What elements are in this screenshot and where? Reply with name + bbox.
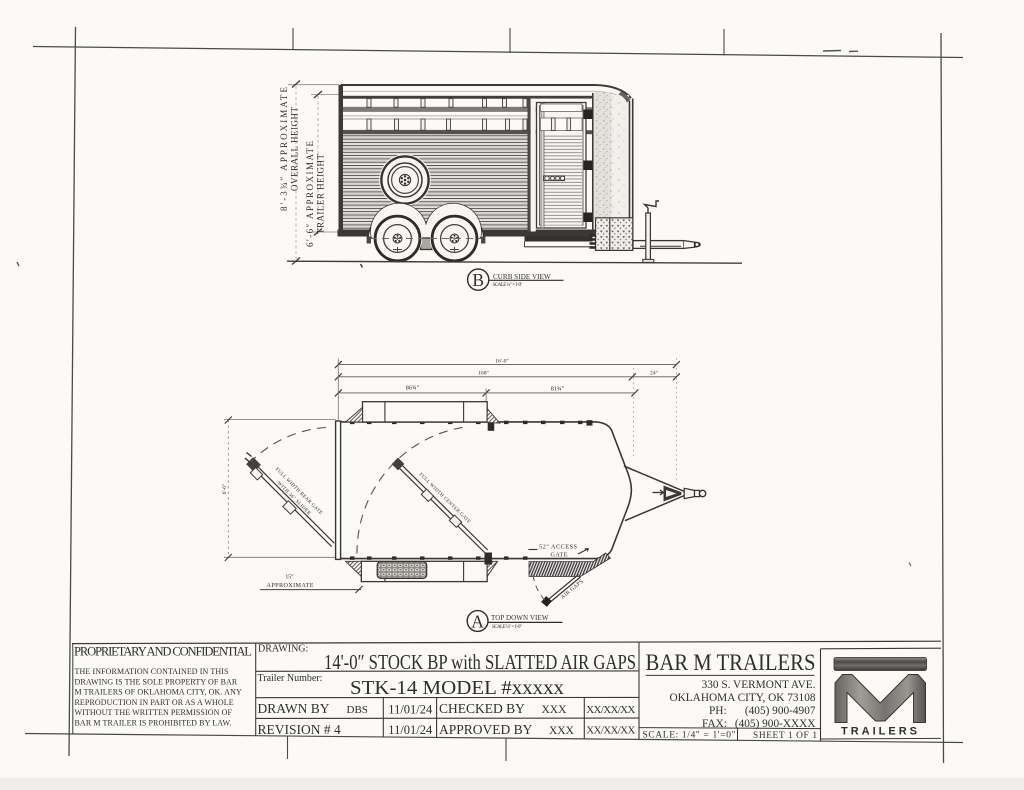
svg-text:XX/XX/XX: XX/XX/XX [586,704,635,716]
svg-text:A: A [471,612,484,632]
svg-text:TRAILERS: TRAILERS [841,726,920,738]
svg-text:SCALE ¼″ = 1'-0″: SCALE ¼″ = 1'-0″ [492,625,522,630]
svg-text:GATE: GATE [551,552,568,559]
svg-text:15″: 15″ [285,575,294,581]
svg-text:81¾″: 81¾″ [551,385,565,392]
svg-text:WITHOUT THE WRITTEN PERMISSION: WITHOUT THE WRITTEN PERMISSION OF [75,708,233,717]
svg-text:STK-14 MODEL #xxxxx: STK-14 MODEL #xxxxx [350,677,564,699]
svg-text:52″ ACCESS: 52″ ACCESS [539,544,578,551]
svg-text:CHECKED BY: CHECKED BY [439,701,525,716]
svg-text:16'-0″: 16'-0″ [495,359,509,365]
svg-text:XXX: XXX [549,725,575,737]
svg-text:B: B [472,270,484,290]
svg-text:DRAWING:: DRAWING: [258,644,308,655]
svg-text:11/01/24: 11/01/24 [388,723,433,737]
svg-text:6'-6″: 6'-6″ [222,484,228,494]
svg-text:DBS: DBS [347,704,368,716]
svg-text:TRAILER HEIGHT: TRAILER HEIGHT [316,154,326,235]
svg-text:PH:: PH: [709,705,727,717]
svg-text:24″: 24″ [650,371,659,377]
svg-text:PROPRIETARY AND CONFIDENTIAL: PROPRIETARY AND CONFIDENTIAL [74,645,252,659]
svg-text:SCALE ¼″ = 1'-0″: SCALE ¼″ = 1'-0″ [493,283,523,288]
svg-text:THE INFORMATION CONTAINED IN T: THE INFORMATION CONTAINED IN THIS [75,667,229,676]
svg-text:330 S. VERMONT AVE.: 330 S. VERMONT AVE. [702,679,816,691]
svg-text:OKLAHOMA CITY, OK 73108: OKLAHOMA CITY, OK 73108 [669,692,815,704]
svg-text:BAR M TRAILER IS PROHIBITED BY: BAR M TRAILER IS PROHIBITED BY LAW. [75,719,232,728]
svg-text:APPROXIMATE: APPROXIMATE [267,582,314,589]
svg-text:REVISION # 4: REVISION # 4 [258,722,341,737]
svg-text:APPROVED BY: APPROVED BY [439,722,533,737]
svg-text:DRAWING IS THE SOLE PROPERTY O: DRAWING IS THE SOLE PROPERTY OF BAR [75,677,238,686]
svg-text:REPRODUCTION IN PART OR AS A W: REPRODUCTION IN PART OR AS A WHOLE [75,698,234,707]
svg-text:8'-3¾″ APPROXIMATE: 8'-3¾″ APPROXIMATE [279,87,289,212]
svg-text:14'-0″ STOCK BP with SLATTED A: 14'-0″ STOCK BP with SLATTED AIR GAPS [324,650,636,674]
svg-text:11/01/24: 11/01/24 [388,702,433,716]
svg-text:TOP DOWN VIEW: TOP DOWN VIEW [491,614,549,622]
svg-text:DRAWN BY: DRAWN BY [258,701,330,716]
svg-text:SHEET 1 OF 1: SHEET 1 OF 1 [753,731,817,741]
svg-text:168″: 168″ [478,371,489,377]
svg-text:(405) 900-4907: (405) 900-4907 [745,705,816,717]
svg-text:SCALE: 1/4″ = 1'=0″: SCALE: 1/4″ = 1'=0″ [643,731,736,741]
svg-text:CURB SIDE VIEW: CURB SIDE VIEW [493,273,551,281]
svg-text:XXX: XXX [542,704,568,716]
svg-text:86¾″: 86¾″ [406,384,420,391]
svg-text:6'-6″ APPROXIMATE: 6'-6″ APPROXIMATE [305,141,315,248]
svg-text:M TRAILERS OF OKLAHOMA CITY, O: M TRAILERS OF OKLAHOMA CITY, OK. ANY [75,688,242,697]
svg-text:BAR M TRAILERS: BAR M TRAILERS [646,650,816,675]
svg-text:Trailer Number:: Trailer Number: [258,673,323,684]
svg-text:XX/XX/XX: XX/XX/XX [586,725,635,737]
svg-text:OVERALL HEIGHT: OVERALL HEIGHT [290,107,300,192]
